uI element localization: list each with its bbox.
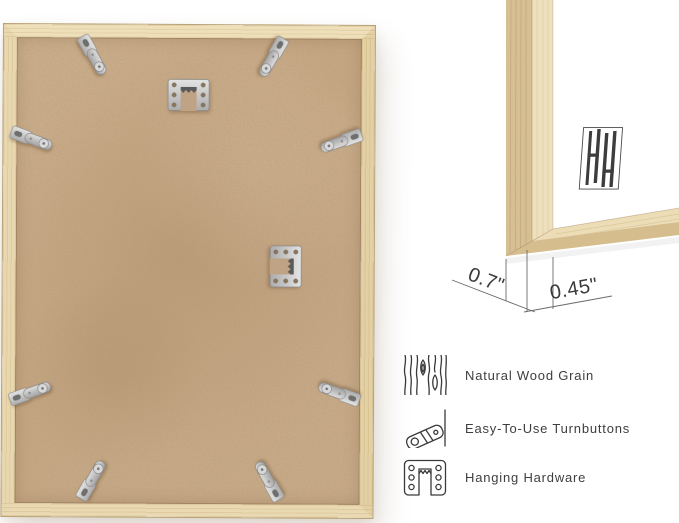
turnbutton-icon [398, 408, 452, 448]
wood-grain-bottom [1, 503, 372, 518]
sawtooth-hanger-top [168, 79, 210, 111]
wood-grain-right [359, 39, 374, 505]
feature-list: Natural Wood Grain Easy-To-Use Turnbutto… [398, 350, 679, 510]
frame-corner-detail: 0.7" 0.45" [440, 0, 679, 330]
feature-natural-wood-grain: Natural Wood Grain [398, 353, 594, 397]
sawtooth-hanger-middle [270, 245, 302, 287]
frame-front-face [532, 0, 553, 241]
feature-label: Hanging Hardware [465, 470, 586, 485]
depth-measurement-label: 0.7" [465, 264, 507, 298]
hanging-hardware-icon [398, 457, 452, 497]
feature-label: Natural Wood Grain [465, 368, 594, 383]
feature-hanging-hardware: Hanging Hardware [398, 455, 586, 499]
hh-monogram-logo [579, 128, 622, 190]
feature-label: Easy-To-Use Turnbuttons [465, 421, 630, 436]
feature-turnbuttons: Easy-To-Use Turnbuttons [398, 406, 630, 450]
product-infographic: 0.7" 0.45" Natural Wood Grain [0, 0, 679, 523]
mdf-backing-board [14, 37, 361, 505]
frame-back-photo [1, 24, 375, 518]
wood-grain-icon [398, 355, 452, 395]
